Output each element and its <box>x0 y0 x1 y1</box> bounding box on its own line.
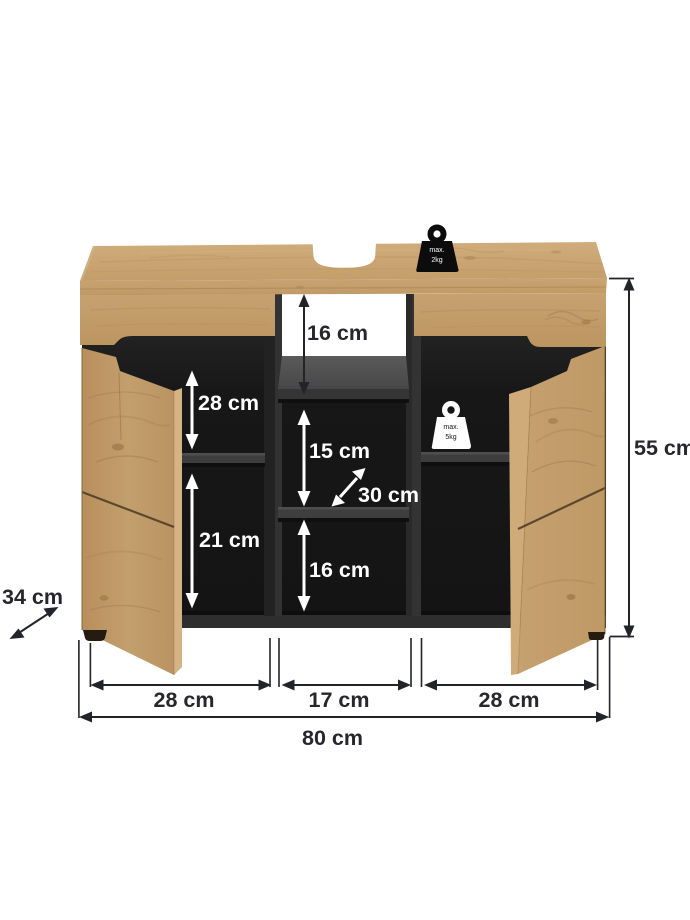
svg-text:28 cm: 28 cm <box>154 688 215 712</box>
svg-text:34 cm: 34 cm <box>2 585 63 609</box>
svg-text:2kg: 2kg <box>431 257 442 264</box>
svg-text:30 cm: 30 cm <box>358 483 419 507</box>
svg-text:17 cm: 17 cm <box>309 688 370 712</box>
svg-text:max.: max. <box>443 424 458 431</box>
svg-text:80 cm: 80 cm <box>302 726 363 750</box>
svg-text:max.: max. <box>429 247 444 254</box>
svg-text:55 cm: 55 cm <box>634 436 690 460</box>
svg-text:21 cm: 21 cm <box>199 528 260 552</box>
svg-text:5kg: 5kg <box>445 434 456 441</box>
svg-text:28 cm: 28 cm <box>479 688 540 712</box>
svg-text:16 cm: 16 cm <box>307 321 368 345</box>
svg-text:16 cm: 16 cm <box>309 558 370 582</box>
svg-text:28 cm: 28 cm <box>198 391 259 415</box>
svg-text:15 cm: 15 cm <box>309 439 370 463</box>
